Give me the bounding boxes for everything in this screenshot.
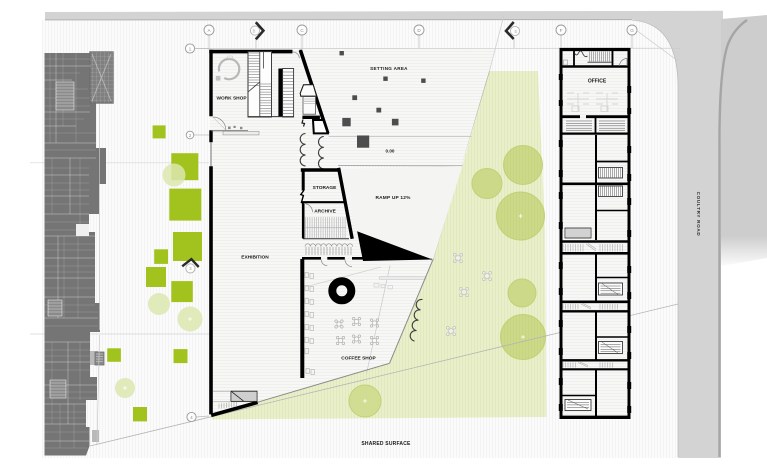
svg-text:EXHIBITION: EXHIBITION xyxy=(241,255,269,261)
svg-text:STORAGE: STORAGE xyxy=(313,185,337,191)
svg-text:SETTING AREA: SETTING AREA xyxy=(370,66,408,71)
svg-text:B: B xyxy=(253,28,256,33)
svg-text:RAMP UP 12%: RAMP UP 12% xyxy=(375,195,411,201)
svg-text:F: F xyxy=(560,28,563,33)
svg-text:WORK SHOP: WORK SHOP xyxy=(216,96,247,102)
svg-text:SHARED SURFACE: SHARED SURFACE xyxy=(361,441,411,447)
svg-text:ARCHIVE: ARCHIVE xyxy=(314,209,336,215)
svg-text:E: E xyxy=(515,29,518,34)
svg-text:OFFICE: OFFICE xyxy=(588,79,607,85)
svg-text:0.00: 0.00 xyxy=(386,149,395,154)
svg-text:G: G xyxy=(630,28,634,33)
svg-text:COULTRY ROAD: COULTRY ROAD xyxy=(696,192,701,237)
svg-text:COFFEE SHOP: COFFEE SHOP xyxy=(341,356,376,362)
